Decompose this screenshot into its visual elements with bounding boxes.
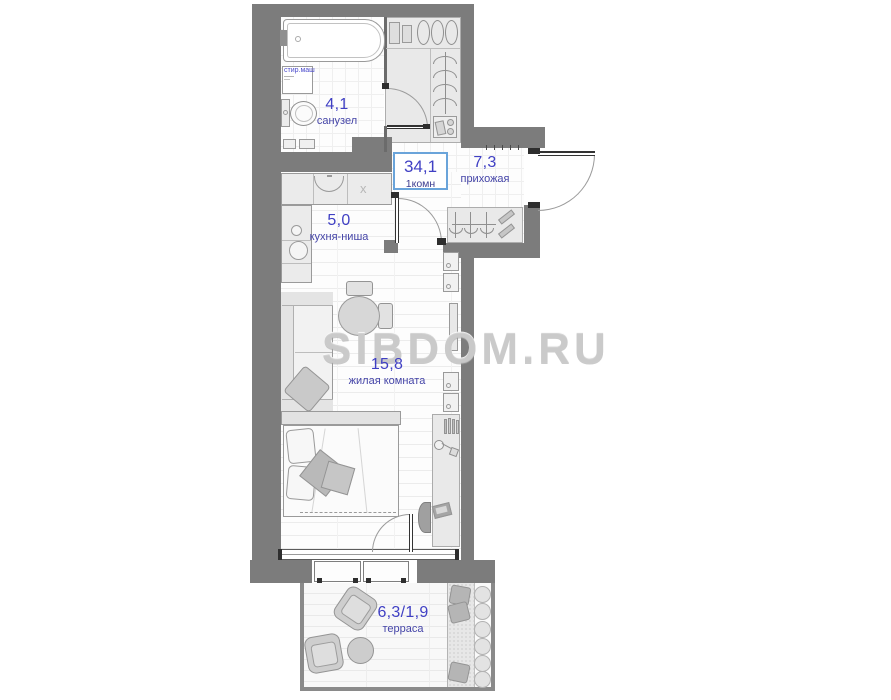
wall-bath-kitchen [252, 152, 355, 172]
wall-unit-icon [443, 393, 459, 412]
terrace-border [491, 583, 495, 691]
hanger-icon [455, 212, 456, 238]
bed-stitching [300, 512, 396, 513]
wall-living-right [461, 243, 474, 560]
armchair-seat [310, 641, 339, 668]
threshold-tick [510, 145, 511, 150]
hanger-icon [431, 20, 444, 45]
cushion-icon [447, 661, 471, 684]
chair-icon [346, 281, 373, 296]
washer-label: стир.маш [284, 67, 315, 75]
wall-unit-icon [443, 252, 459, 271]
desk-chair-icon [418, 502, 431, 533]
stove-burner-icon [289, 241, 308, 260]
hanger-icon [486, 212, 487, 238]
window-cap [455, 549, 459, 560]
wall-unit-icon [443, 273, 459, 292]
plant-icon [474, 603, 491, 620]
balcony-door-leaf [409, 514, 413, 552]
plant-icon [474, 671, 491, 688]
books-icon [448, 418, 451, 434]
wall-bottom-left [250, 560, 312, 583]
room-area: 4,1 [300, 97, 374, 114]
washer-sub-line [284, 76, 294, 77]
room-area: 6,3/1,9 [360, 605, 446, 622]
door-jamb [528, 202, 540, 208]
shoes-icon [447, 119, 454, 126]
books-icon [452, 419, 455, 434]
door-jamb [528, 148, 540, 154]
faucet-icon [280, 30, 287, 46]
room-label-hallway: 7,3 прихожая [452, 155, 518, 185]
wall-bathroom-partition [384, 17, 387, 85]
wall-top [252, 4, 474, 17]
room-label-kitchen: 5,0 кухня-ниша [295, 213, 383, 243]
wall-bottom-right [417, 560, 495, 583]
threshold-tick [502, 145, 503, 150]
entrance-door-arc [538, 154, 595, 211]
room-area: 15,8 [341, 357, 433, 374]
flush-button-icon [283, 110, 288, 115]
total-area-value: 34,1 [395, 157, 446, 177]
apartment-type: 1комн [395, 178, 446, 190]
washer-sub-line [284, 79, 290, 80]
threshold-tick [486, 145, 487, 150]
window-cap [278, 549, 282, 560]
panel-foot [401, 578, 406, 583]
books-icon [456, 420, 459, 434]
door-jamb [391, 192, 399, 198]
sink-faucet-icon [327, 175, 332, 177]
threshold-tick [494, 145, 495, 150]
wardrobe-shelf-divider [386, 48, 460, 49]
room-name: жилая комната [341, 376, 433, 388]
window-mullion [278, 554, 459, 555]
room-label-terrace: 6,3/1,9 терраса [360, 605, 446, 635]
wall-unit-knob [446, 383, 451, 388]
panel-foot [353, 578, 358, 583]
side-table-icon [347, 637, 374, 664]
wall-unit-icon [443, 372, 459, 391]
entrance-door-leaf [538, 151, 595, 156]
desk-lamp-icon [434, 440, 444, 450]
drain-icon [295, 36, 301, 42]
room-name: кухня-ниша [295, 232, 383, 244]
room-name: санузел [300, 116, 374, 128]
room-name: прихожая [452, 174, 518, 186]
door-jamb [437, 238, 446, 245]
bath-shelf-icon [299, 139, 315, 149]
books-icon [444, 419, 447, 434]
wall-unit-knob [446, 263, 451, 268]
hanger-icon [445, 20, 458, 45]
plant-icon [474, 621, 491, 638]
floor-plan: стир.маш x [0, 0, 891, 700]
plant-icon [474, 655, 491, 672]
living-door-leaf [395, 198, 399, 243]
threshold-tick [518, 145, 519, 150]
terrace-border [300, 583, 304, 691]
room-label-bathroom: 4,1 санузел [300, 97, 374, 127]
wall-wardrobe-right [461, 4, 474, 143]
shoes-icon [447, 128, 454, 135]
room-area: 7,3 [452, 155, 518, 172]
bed-headboard [281, 411, 401, 425]
bathroom-door-leaf [387, 125, 428, 129]
total-area-box: 34,1 1комн [393, 152, 448, 190]
wall-hall-top [461, 127, 545, 148]
panel-foot [317, 578, 322, 583]
counter-divider [282, 263, 311, 264]
bath-shelf-icon [283, 139, 296, 149]
wardrobe-column-divider [430, 49, 431, 142]
bathtub-inner [287, 23, 381, 58]
room-name: терраса [360, 624, 446, 636]
wall-unit-knob [446, 284, 451, 289]
vent-symbol: x [360, 181, 367, 196]
coat-rod-icon [452, 224, 496, 225]
plant-icon [474, 638, 491, 655]
room-area: 5,0 [295, 213, 383, 230]
wall-bathroom-partition [384, 126, 387, 152]
room-label-living: 15,8 жилая комната [341, 357, 433, 387]
hanger-icon [470, 212, 471, 238]
folded-clothes-icon [402, 25, 412, 43]
terrace-border [300, 687, 495, 691]
counter-divider [347, 174, 348, 204]
hanger-icon [417, 20, 430, 45]
wall-unit-knob [446, 404, 451, 409]
door-jamb [423, 124, 430, 129]
door-jamb [382, 83, 389, 89]
sofa-armrest [282, 292, 333, 306]
panel-foot [366, 578, 371, 583]
plant-icon [474, 586, 491, 603]
folded-clothes-icon [389, 22, 400, 44]
wall-left [252, 4, 281, 562]
